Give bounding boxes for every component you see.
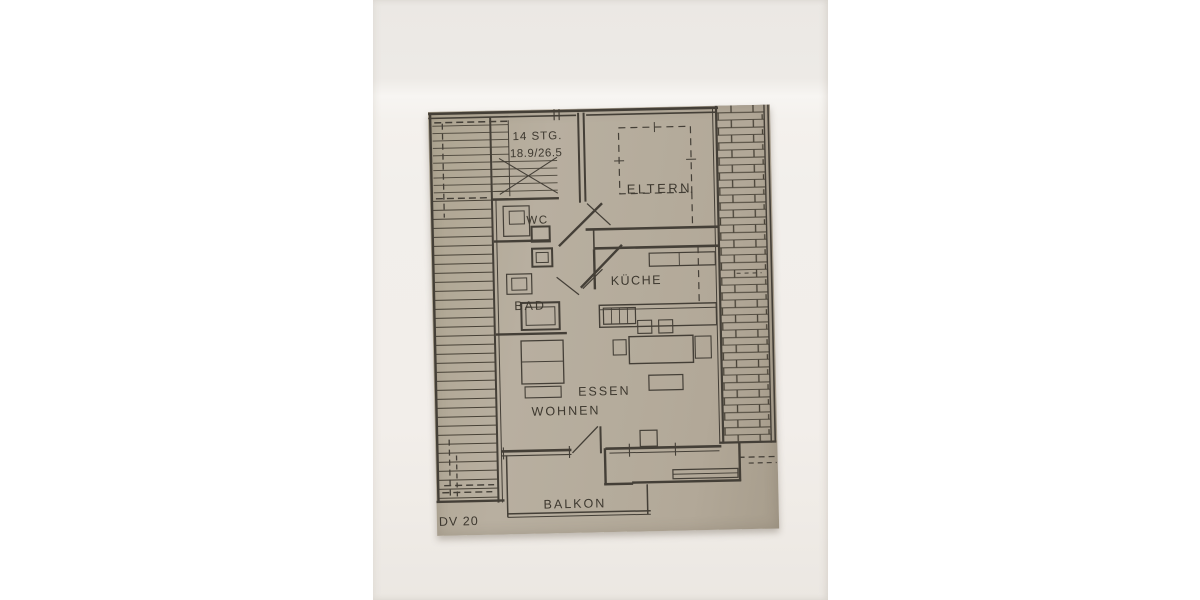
stair-note-line1: 14 STG. [512, 130, 562, 143]
stair-note-line2: 18.9/26.5 [510, 147, 563, 160]
sheet-code-label: DV 20 [439, 514, 479, 529]
room-label-balkon: BALKON [543, 496, 606, 511]
scanned-floor-plan-sheet: 14 STG. 18.9/26.5 ELTERN WC BAD KÜCHE ES… [428, 105, 779, 536]
room-label-eltern: ELTERN [627, 180, 693, 196]
screenshot-root: 14 STG. 18.9/26.5 ELTERN WC BAD KÜCHE ES… [0, 0, 1200, 600]
roof-hatch-right-strip [712, 105, 777, 464]
room-label-wc: WC [526, 214, 548, 226]
room-label-kueche: KÜCHE [611, 273, 663, 288]
room-label-bad: BAD [514, 298, 546, 313]
floor-plan-drawing: 14 STG. 18.9/26.5 ELTERN WC BAD KÜCHE ES… [428, 105, 779, 536]
room-label-essen: ESSEN [578, 384, 631, 399]
floor-plan-photo: 14 STG. 18.9/26.5 ELTERN WC BAD KÜCHE ES… [373, 0, 828, 600]
room-label-wohnen: WOHNEN [531, 403, 600, 419]
